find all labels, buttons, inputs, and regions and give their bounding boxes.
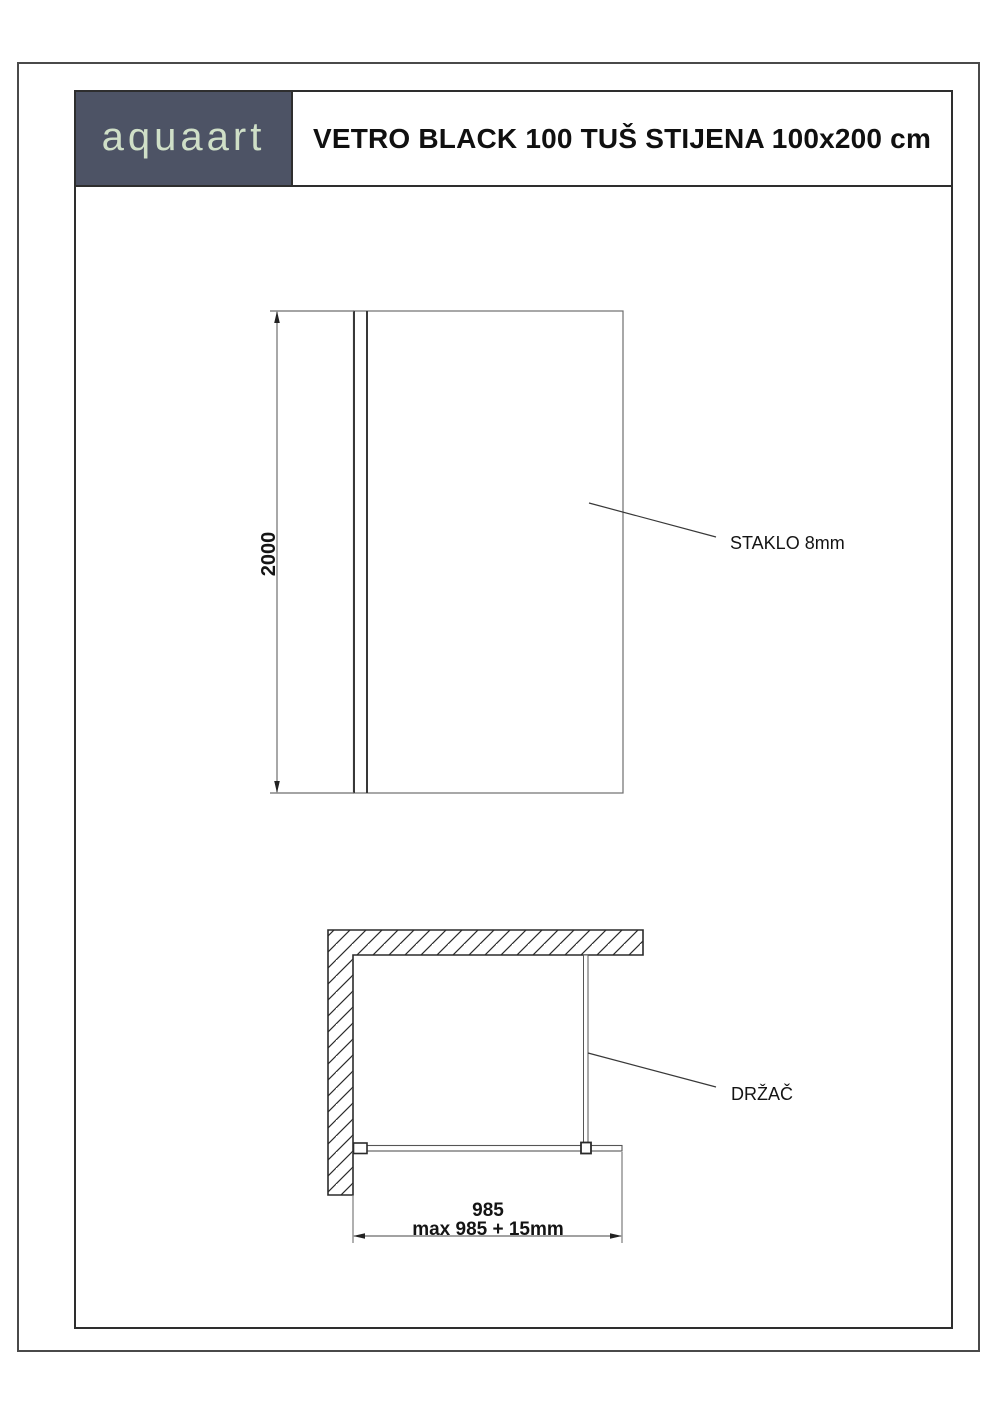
width-dimension-max-text: max 985 + 15mm [412, 1219, 564, 1240]
glass-label: STAKLO 8mm [730, 533, 845, 553]
width-dimension-text: 985 [472, 1200, 504, 1221]
plan-view: DRŽAČ 985 max 985 + 15mm [328, 930, 793, 1243]
support-bar [584, 955, 589, 1143]
wall-hatched-section [328, 930, 643, 1195]
support-bar-clamp [581, 1143, 591, 1154]
arrow-right-icon [610, 1233, 622, 1239]
glass-panel-outline [354, 311, 624, 793]
arrow-up-icon [274, 311, 280, 323]
arrow-left-icon [353, 1233, 365, 1239]
wall-profile-plan [354, 1143, 368, 1154]
holder-label: DRŽAČ [731, 1083, 793, 1104]
arrow-down-icon [274, 781, 280, 793]
height-dimension-text: 2000 [258, 532, 280, 577]
shower-wall-drawing: 2000 STAKLO 8mm DRŽAČ 985 max 985 + 15mm [0, 0, 1000, 1414]
holder-leader-line [588, 1053, 716, 1087]
front-view: 2000 STAKLO 8mm [258, 311, 845, 793]
technical-drawing-page: { "header": { "logo": "aquaart", "title"… [0, 0, 1000, 1414]
